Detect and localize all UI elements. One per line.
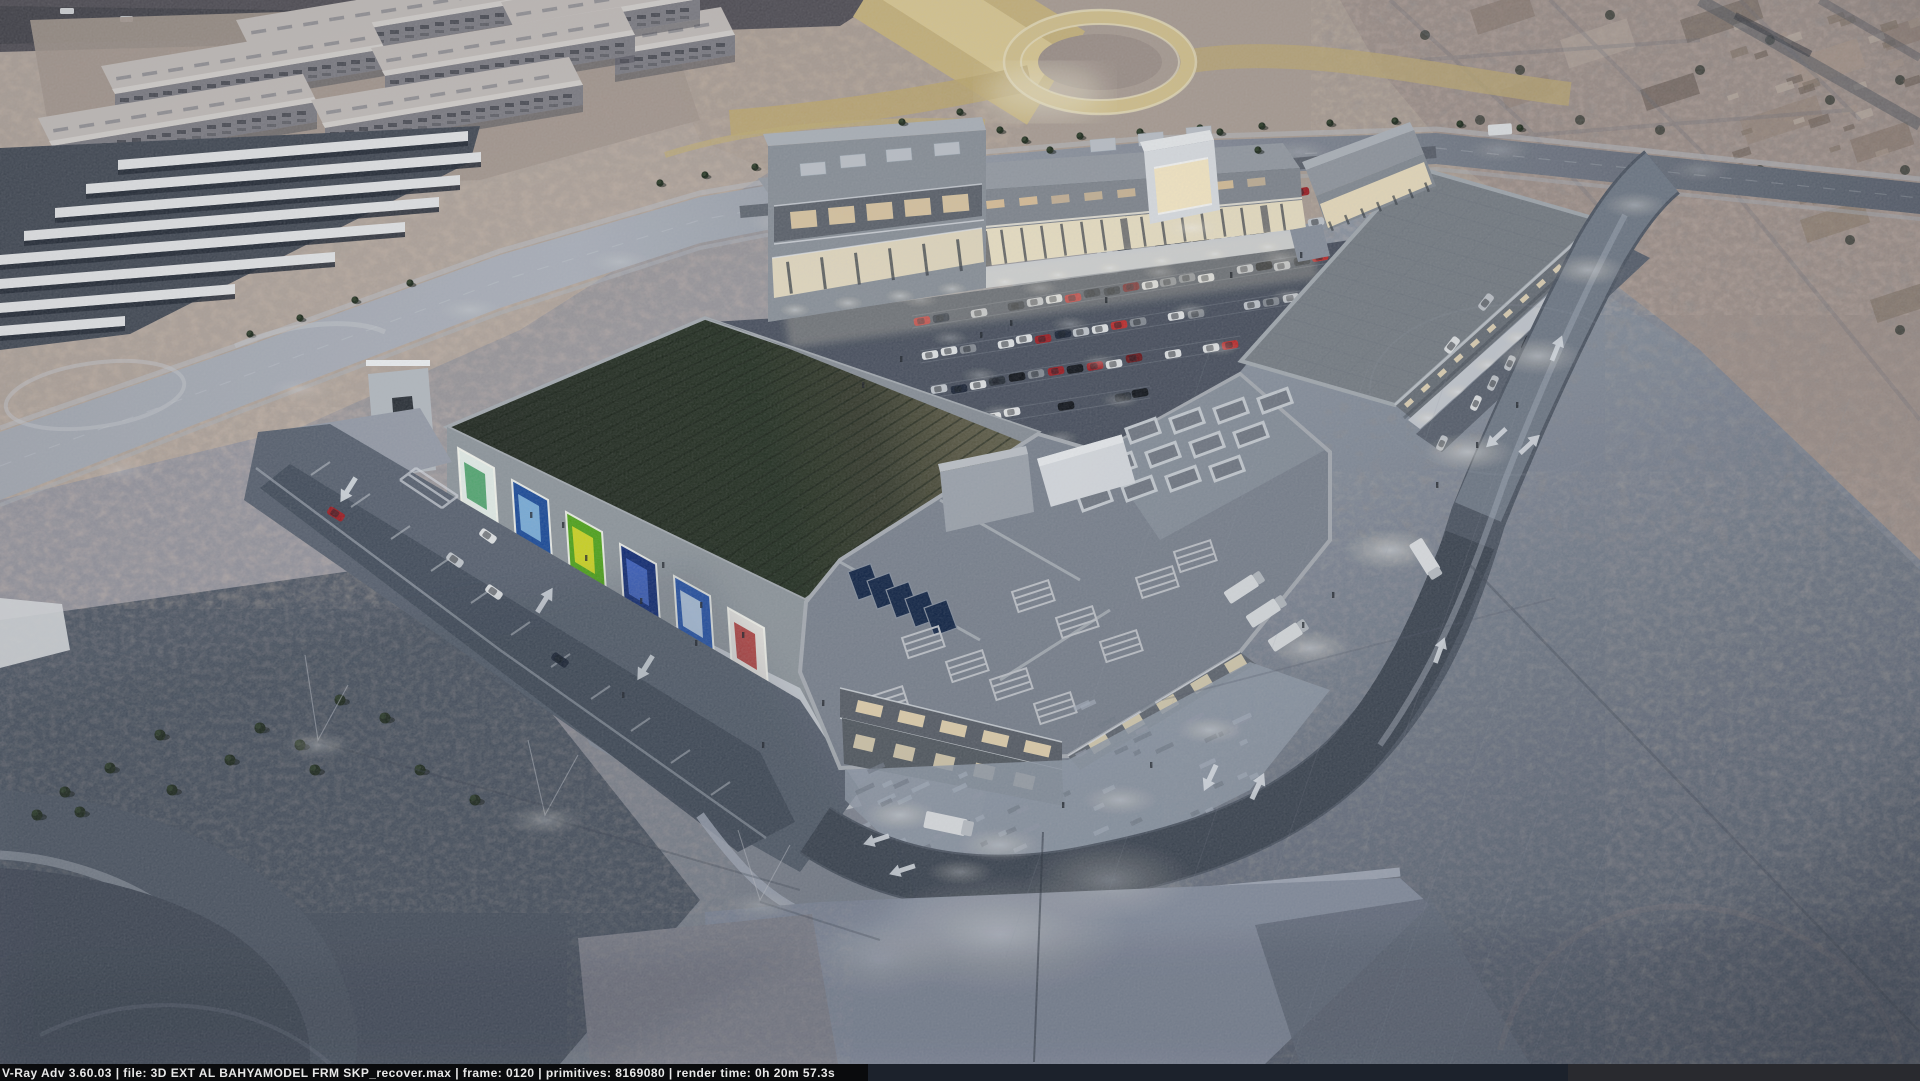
svg-text:V-Ray Adv 3.60.03 | file: 3D E: V-Ray Adv 3.60.03 | file: 3D EXT AL BAHY… bbox=[2, 1066, 835, 1080]
